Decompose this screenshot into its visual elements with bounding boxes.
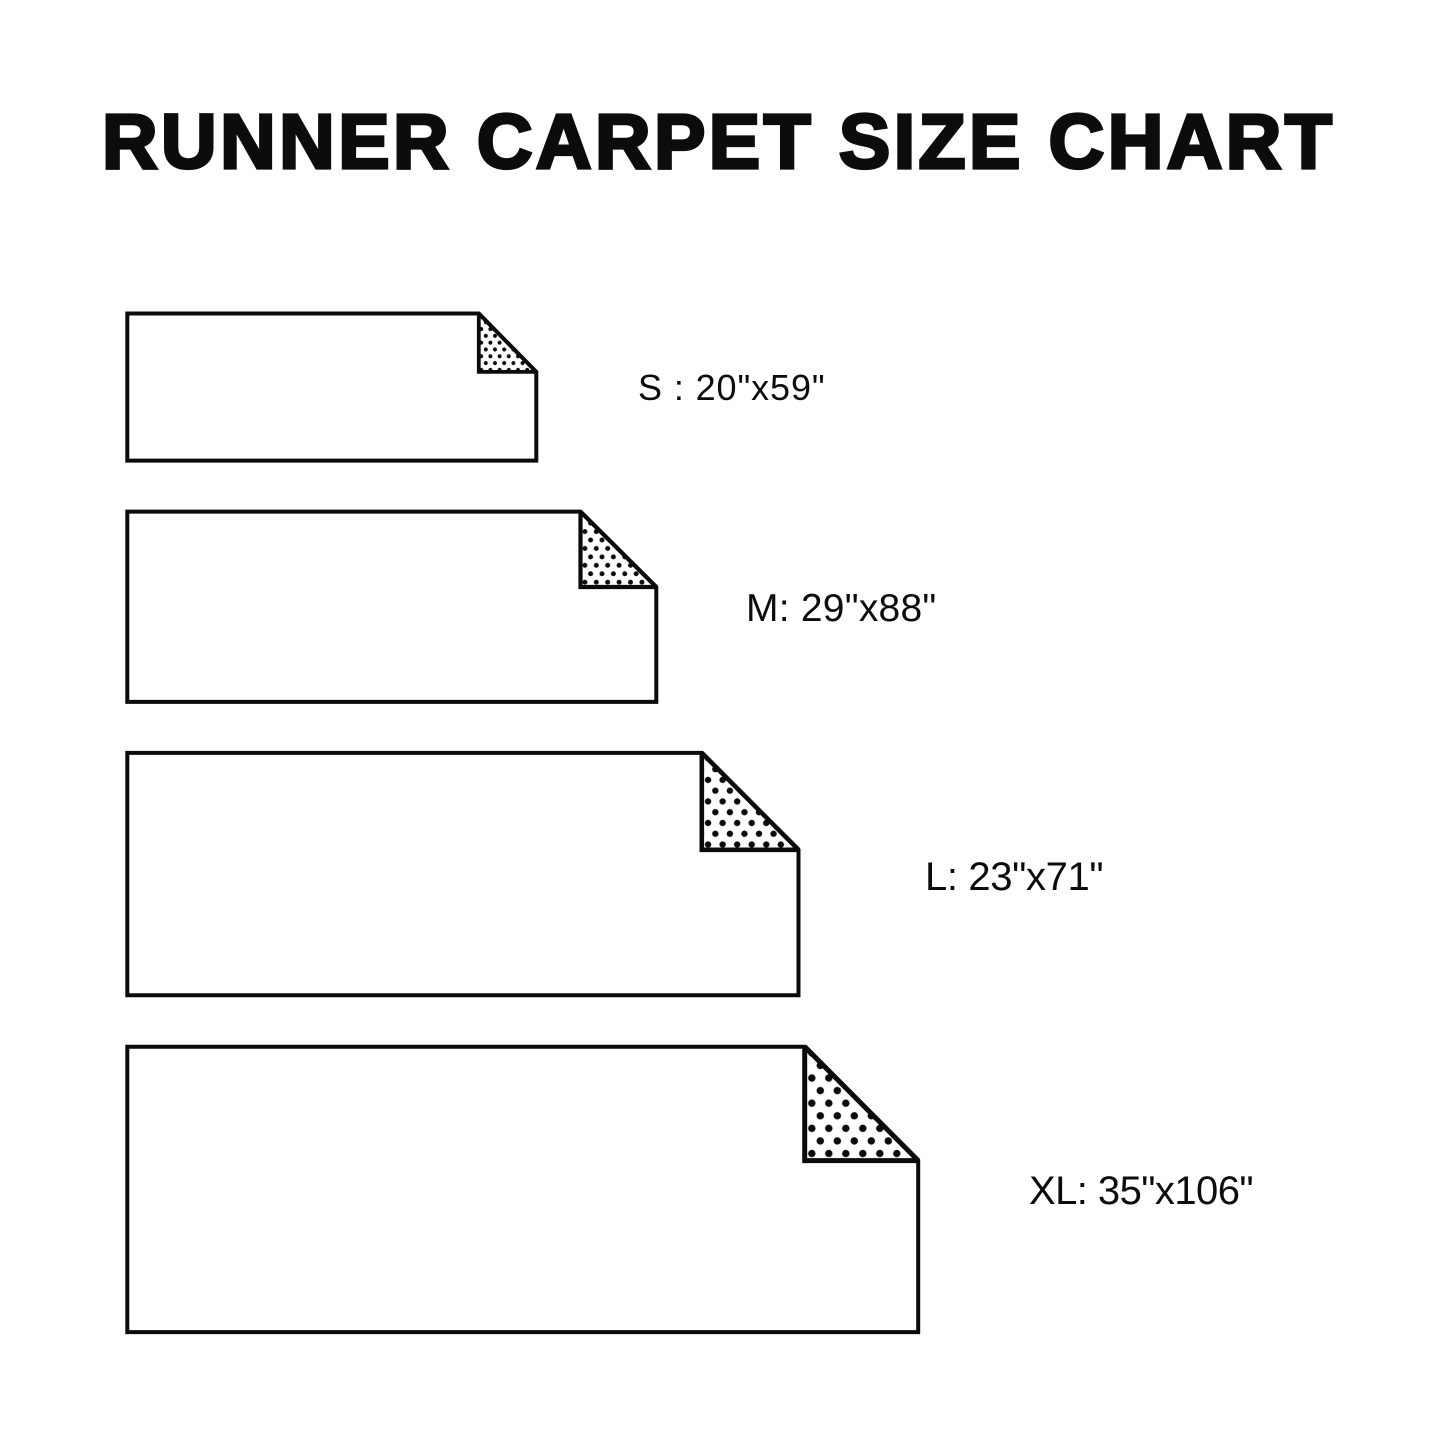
svg-text:RUNNER CARPET SIZE CHART: RUNNER CARPET SIZE CHART — [102, 99, 1335, 185]
svg-text:XL: 35"x106": XL: 35"x106" — [1029, 1169, 1253, 1213]
svg-text:M: 29"x88": M: 29"x88" — [746, 587, 937, 630]
svg-text:L: 23"x71": L: 23"x71" — [925, 855, 1103, 899]
svg-text:S : 20"x59": S : 20"x59" — [638, 367, 826, 408]
